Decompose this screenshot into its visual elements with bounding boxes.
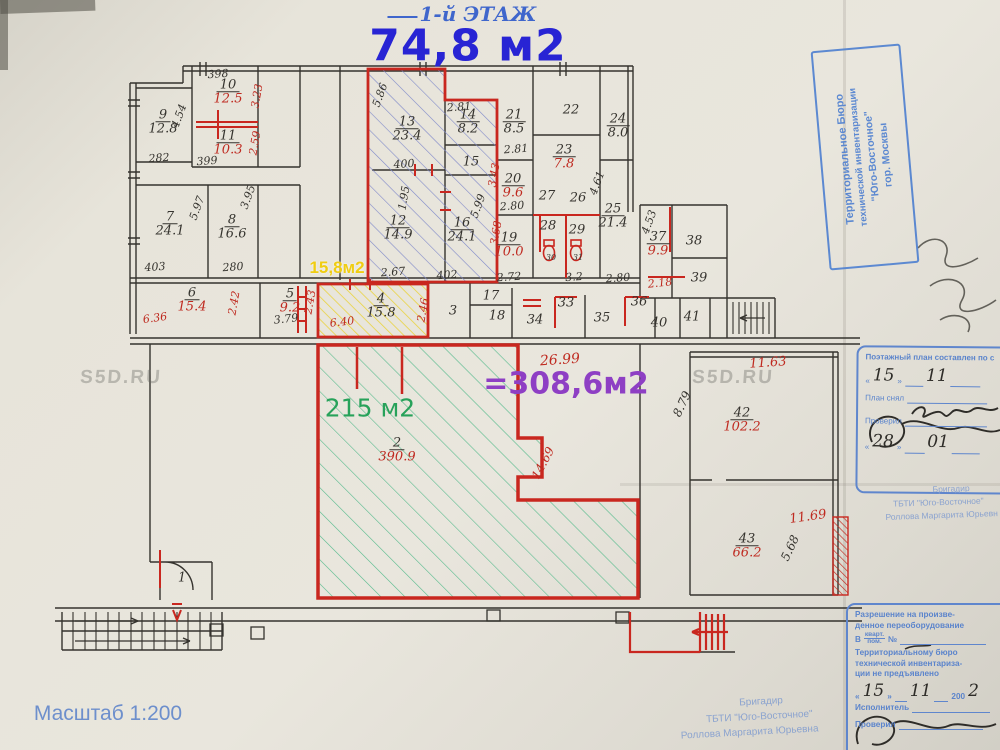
dim-label: 282 [148,151,170,165]
room-label-41: 41 [681,310,704,323]
room-label-15: 15 [460,155,483,168]
plan-date-stamp: Поэтажный план составлен по с « 15 » 11 … [855,345,1000,495]
dim-label: 2.81 [503,142,528,157]
floor-title-underline [387,16,417,18]
room-label-39: 39 [688,271,711,284]
dim-label: 2.81 [446,100,471,115]
dim-label: 2.18 [647,275,673,290]
plan-stamp-title: Поэтажный план составлен по с [865,352,1000,364]
hand-date2-day: 28 [872,431,894,453]
dim-label: 2.80 [605,271,630,286]
room-label-26: 26 [567,191,590,204]
scanned-floorplan-sheet: { "page": { "floor_label": "1-й ЭТАЖ", "… [0,0,1000,750]
dim-label: 3.79 [273,311,299,326]
room-label-34: 34 [524,313,547,326]
bti-stamp-top-right: Территориальное Бюро технической инвента… [811,43,920,270]
proveril-label: Проверил [865,416,902,427]
room-label-6: 615.4 [178,286,207,314]
room-label-29: 29 [566,223,589,236]
room-label-10: 1012.5 [214,78,243,106]
brigadir-block-right: Бригадир ТБТИ "Юго-Восточное" Роллова Ма… [884,481,998,524]
room-label-30: 30 [543,254,559,262]
room-label-24: 248.0 [607,112,630,140]
room-label-36: 36 [628,295,651,308]
permission-stamp: Разрешение на произве- денное переоборуд… [846,603,1000,750]
dim-label: 280 [222,260,244,274]
green-area-label: 215 м2 [325,394,415,423]
scale-label: Масштаб 1:200 [34,702,182,726]
dim-label: 399 [196,154,218,168]
dim-label: 400 [393,157,415,171]
room-label-4: 415.8 [367,292,396,320]
dim-label: 6.40 [329,314,355,329]
room-label-28: 28 [537,219,560,232]
room-label-20: 209.6 [502,172,525,200]
room-label-3: 3 [446,304,460,317]
room-label-1: 1 [175,571,189,584]
purple-total-label: =308,6м2 [483,367,648,402]
room-label-2: 2390.9 [378,436,415,464]
room-label-42: 42102.2 [723,406,760,434]
hand-date-day: 15 [873,365,895,387]
room-label-27: 27 [536,189,559,202]
room-label-38: 38 [683,234,706,247]
dim-label: 403 [144,260,166,274]
dim-label: 2.72 [496,270,521,285]
dim-label: 2.67 [380,265,405,280]
watermark: S5D.RU [79,367,162,389]
room-label-13: 1323.4 [393,115,422,143]
room-label-11: 1110.3 [214,129,243,157]
yellow-area-label: 15,8м2 [309,258,364,278]
plan-snyal-label: План снял [865,393,904,404]
room-label-40: 40 [648,316,671,329]
room-label-25: 2521.4 [599,202,628,230]
dim-label: 3.2 [565,270,583,284]
room-label-17: 17 [480,289,503,302]
total-area-label: 74,8 м2 [369,21,566,72]
dim-label: 398 [207,67,229,81]
room-label-8: 816.6 [218,213,247,241]
room-label-21: 218.5 [503,108,526,136]
dim-label: 2.80 [499,199,524,214]
hand-date-month: 11 [926,365,948,387]
room-label-35: 35 [591,311,614,324]
dim-label: 402 [436,268,458,282]
pencil-scribble [918,239,996,332]
room-label-23: 237.8 [553,143,576,171]
room-label-43: 4366.2 [733,532,762,560]
hand-date2-month: 01 [927,431,949,453]
room-label-22: 22 [560,103,583,116]
room-label-31: 31 [570,254,586,262]
room-label-12: 1214.9 [384,214,413,242]
room-label-33: 33 [555,296,578,309]
room-label-16: 1624.1 [448,216,477,244]
watermark: S5D.RU [691,367,774,389]
room-label-7: 724.1 [156,210,185,238]
room-label-18: 18 [486,309,509,322]
brigadir-block-bottom: Бригадир ТБТИ "Юго-Восточное" Роллова Ма… [679,691,819,743]
